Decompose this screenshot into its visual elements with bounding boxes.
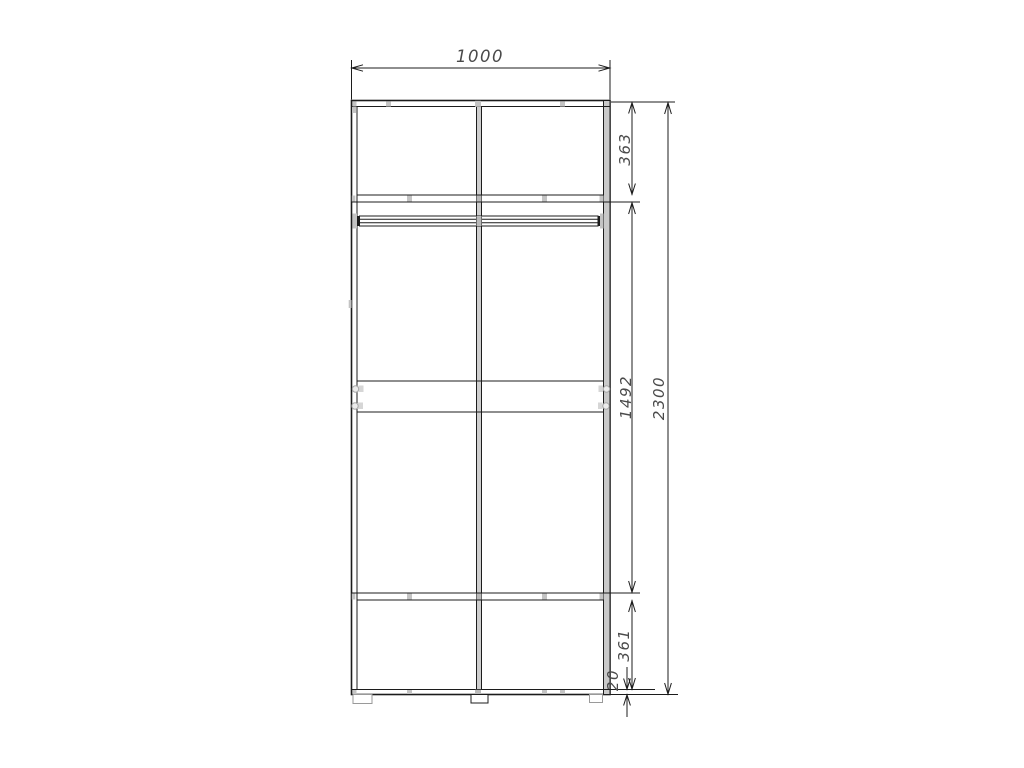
hinge-plate: [598, 403, 603, 410]
center-divider: [477, 107, 482, 690]
drawing-canvas: 1000 363 1492 361 20 2300: [0, 0, 1024, 768]
rail-right-cap: [598, 216, 601, 226]
hanging-rail: [353, 214, 604, 229]
dimension-base: 20: [604, 667, 630, 717]
dimension-width: 1000: [352, 47, 611, 100]
bottom-section-label: 361: [615, 628, 633, 661]
right-side-panel: [604, 101, 611, 695]
dimension-middle-section: 1492: [617, 202, 635, 593]
wardrobe-technical-drawing: 1000 363 1492 361 20 2300: [0, 0, 1024, 768]
rail-divider-cross: [477, 216, 482, 226]
feet: [353, 695, 603, 704]
center-foot: [471, 695, 488, 704]
rail-left-bracket: [353, 214, 358, 229]
hinge-plate: [359, 386, 364, 393]
hinge-plate: [358, 403, 363, 410]
right-foot: [590, 695, 603, 703]
dimension-top-section: 363: [616, 102, 635, 195]
wardrobe-body: [349, 101, 655, 704]
top-section-label: 363: [616, 132, 634, 165]
hinge-cup-icon: [352, 403, 358, 409]
middle-section-label: 1492: [617, 375, 635, 419]
dimension-total-height: 2300: [650, 102, 671, 695]
rail-right-bracket: [600, 214, 604, 229]
left-foot: [353, 695, 372, 704]
total-height-label: 2300: [650, 376, 668, 420]
base-height-label: 20: [604, 669, 622, 691]
width-dimension-label: 1000: [456, 47, 504, 66]
hinge-cup-icon: [603, 403, 609, 409]
hinge-cup-icon: [603, 386, 609, 392]
hinge-cup-icon: [352, 386, 358, 392]
hinge-plate: [599, 386, 604, 393]
rail-left-cap: [358, 216, 361, 226]
